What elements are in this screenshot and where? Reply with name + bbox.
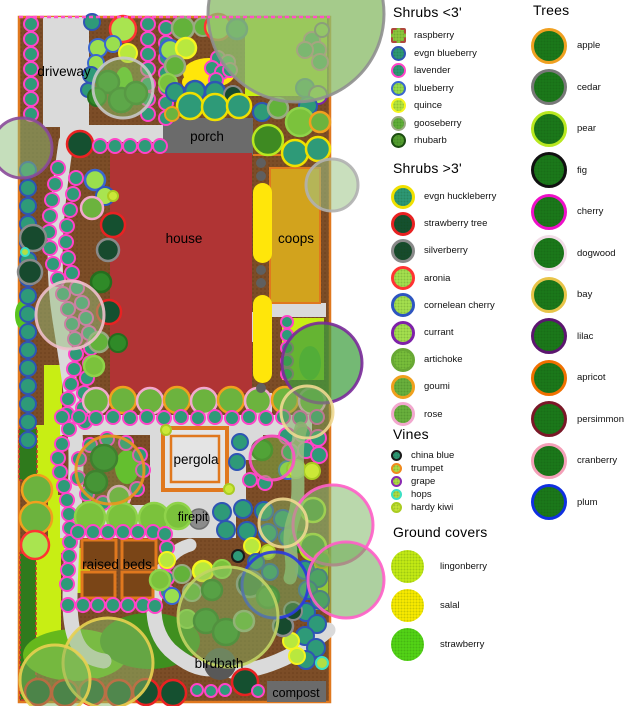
legend-swatch-evgn-huckleberry [391,185,415,209]
plant-lav [53,465,67,479]
plant-hki [304,463,320,479]
plant-lav [123,411,137,425]
legend-item-label: apple [577,40,600,51]
plant-ehk [177,93,203,119]
legend-swatch-cornelean-cherry [391,293,415,317]
legend-item: lingonberry [391,547,529,586]
legend-item-label: strawberry [440,639,484,650]
plant-lav [48,177,62,191]
plant-qui [176,38,196,58]
plant-lav [55,437,69,451]
legend-swatch-gooseberry [391,116,406,131]
legend-swatch-currant [391,321,415,345]
plant-lav [57,479,71,493]
legend-swatch-lingonberry [391,550,424,583]
legend-swatch-persimmon [531,401,567,437]
legend-item-label: rhubarb [414,135,447,146]
plant-lav [259,411,273,425]
legend-swatch-aronia [391,266,415,290]
plant-hki [108,191,118,201]
plant-lav [153,139,167,153]
plant-art [84,356,104,376]
plant-qui [289,648,305,664]
legend-item-label: silverberry [424,245,468,256]
plant-evb [20,306,36,322]
legend-swatch-artichoke [391,348,415,372]
legend-swatch-lavender [391,63,406,78]
legend-swatch-evgn-blueberry [391,46,406,61]
legend-item-label: cherry [577,206,603,217]
plant-lav [243,473,257,487]
plant-evb [20,414,36,430]
legend-swatch-cedar [531,69,567,105]
legend-item: plum [531,482,637,524]
legend-item-label: china blue [411,450,454,461]
legend-swatch-fig [531,152,567,188]
plant-lav [311,447,327,463]
plant-lav [148,599,162,613]
plant-evb [20,378,36,394]
legend-item-label: hardy kiwi [411,502,453,513]
legend-item: lilac [531,316,637,358]
plant-lav [174,410,188,424]
legend-item: persimmon [531,399,637,441]
plant-lav [60,493,74,507]
plant-lav [69,171,83,185]
plant-dot [256,171,266,181]
legend-item-label: goumi [424,381,450,392]
legend-section-title: Shrubs <3' [393,4,529,20]
plant-evb [20,396,36,412]
legend-item: pear [531,108,637,150]
plant-lav [61,392,75,406]
plant-evb [217,521,235,539]
legend-swatch-cranberry [531,443,567,479]
legend-item-label: lingonberry [440,561,487,572]
house-label: house [166,231,203,246]
legend-swatch-salal [391,589,424,622]
legend-item-label: apricot [577,372,606,383]
yellow-strip-2 [253,295,272,383]
house [110,153,252,393]
plant-evb [20,198,36,214]
tree-canopy [259,499,307,547]
plant-lav [24,62,38,76]
pergola-label: pergola [173,452,219,467]
tree-canopy [308,542,384,618]
legend-item-label: trumpet [411,463,443,474]
legend-swatch-apple [531,28,567,64]
legend-swatch-blueberry [391,81,406,96]
legend-item: blueberry [391,80,529,98]
legend-section: Treesapplecedarpearfigcherrydogwoodbayli… [531,2,637,523]
plant-lav [61,598,75,612]
legend-swatch-grape [391,476,402,487]
plant-lav [55,410,69,424]
legend-item-label: fig [577,165,587,176]
legend-item: lavender [391,62,529,80]
legend-swatch-strawberry [391,628,424,661]
plant-lav [219,684,231,696]
plant-lav [208,410,222,424]
legend-section: Shrubs >3'evgn huckleberrystrawberry tre… [391,160,529,428]
plant-dot [256,383,266,393]
legend-item: artichoke [391,346,529,373]
legend-item-label: lavender [414,65,450,76]
legend-item-label: blueberry [414,83,454,94]
plant-lav [51,451,65,465]
legend-swatch-silverberry [391,239,415,263]
plant-evb [20,180,36,196]
plant-lav [60,219,74,233]
plant-svb [18,260,42,284]
plant-stt [160,680,186,706]
legend-col-1: Shrubs <3'raspberryevgn blueberrylavende… [391,0,529,706]
plant-lav [123,139,137,153]
plant-lav [61,251,75,265]
legend-swatch-plum [531,484,567,520]
legend-item: dogwood [531,233,637,275]
legend-swatch-strawberry-tree [391,212,415,236]
legend-item: evgn blueberry [391,45,529,63]
plant-lav [24,77,38,91]
tree-canopy [76,436,144,504]
plant-lav [60,577,74,591]
plant-ehk [282,140,308,166]
plant-qui [159,552,175,568]
plant-lav [72,410,86,424]
plant-lav [63,203,77,217]
plant-lav [121,598,135,612]
plant-lav [24,17,38,31]
legend-section-title: Trees [533,2,637,18]
plant-svb [20,225,46,251]
legend-item: silverberry [391,237,529,264]
tree-canopy [281,386,333,438]
plant-evb [232,434,248,450]
legend-item: aronia [391,265,529,292]
legend-item: apricot [531,357,637,399]
legend-item: trumpet [391,462,529,475]
legend-swatch-china-blue [391,450,402,461]
legend-item-label: plum [577,497,598,508]
tree-canopy [250,436,294,480]
plant-evb [20,342,36,358]
legend-item-label: evgn huckleberry [424,191,496,202]
plant-lav [116,525,130,539]
legend-item-label: strawberry tree [424,218,487,229]
plant-dot [256,278,266,288]
plant-hop [21,248,29,256]
legend-item-label: pear [577,123,596,134]
plant-lav [242,410,256,424]
legend-item-label: artichoke [424,354,463,365]
garden-plan-page: driveway porch house coops pergola firep… [0,0,637,706]
plant-lav [158,527,172,541]
plant-evb [20,324,36,340]
legend-swatch-hops [391,489,402,500]
plant-ehk [202,94,228,120]
legend-item-label: dogwood [577,248,616,259]
plant-gou [310,112,330,132]
tree-canopy [36,281,104,349]
plant-evb [229,454,245,470]
plant-lav [131,525,145,539]
plant-lav [67,362,81,376]
legend-section: Ground coverslingonberrysalalstrawberry [391,524,529,664]
plant-svb [97,239,119,261]
legend-item: grape [391,475,529,488]
legend-section-title: Vines [393,426,529,442]
plant-blu [164,588,180,604]
legend-swatch-cherry [531,194,567,230]
legend-item: currant [391,319,529,346]
plant-lav [89,411,103,425]
plant-lav [108,139,122,153]
plant-lav [61,563,75,577]
plant-gou [164,387,190,413]
plant-lav [191,411,205,425]
plant-lav [59,235,73,249]
compost-label: compost [272,686,320,700]
plant-lav [24,32,38,46]
plant-gou [20,502,52,534]
legend-item: rhubarb [391,132,529,150]
plant-lav [141,47,155,61]
plant-dot [256,265,266,275]
legend-item: rose [391,401,529,428]
tree-canopy [0,118,52,178]
plant-evb [20,360,36,376]
legend-item: strawberry tree [391,210,529,237]
legend-item-label: currant [424,327,454,338]
legend-item: evgn huckleberry [391,183,529,210]
legend-item: cornelean cherry [391,292,529,319]
tree-canopy [178,567,278,667]
legend-item-label: quince [414,100,442,111]
legend-item: raspberry [391,27,529,45]
legend-section: Shrubs <3'raspberryevgn blueberrylavende… [391,4,529,150]
legend-section-title: Shrubs >3' [393,160,529,176]
legend-item-label: gooseberry [414,118,462,129]
legend-section-title: Ground covers [393,524,529,540]
plant-art [150,570,170,590]
legend-item: china blue [391,449,529,462]
legend-swatch-quince [391,98,406,113]
plant-evb [20,432,36,448]
plant-lav [71,525,85,539]
legend-item-label: cranberry [577,455,617,466]
plant-dot [256,158,266,168]
porch-label: porch [190,129,224,144]
legend-item: hardy kiwi [391,501,529,514]
plant-lav [157,411,171,425]
legend-swatch-rhubarb [391,133,406,148]
plant-stt [67,131,93,157]
legend-swatch-lilac [531,318,567,354]
plant-lav [191,684,203,696]
legend-item: bay [531,274,637,316]
plant-ehk [306,137,330,161]
legend-swatch-goumi [391,375,415,399]
legend-item-label: cornelean cherry [424,300,495,311]
yellow-strip-1 [253,183,272,263]
legend-item: fig [531,150,637,192]
plant-lav [76,598,90,612]
plant-goo [172,17,194,39]
legend-item-label: persimmon [577,414,624,425]
birdbath-label: birdbath [195,656,244,671]
plant-hki [224,484,234,494]
legend-swatch-rose [391,402,415,426]
plant-lav [24,47,38,61]
plant-lav [62,549,76,563]
plant-lav [65,266,79,280]
plant-dg [109,334,127,352]
legend-item-label: grape [411,476,435,487]
legend-item-label: salal [440,600,460,611]
plant-lav [43,209,57,223]
legend-swatch-dogwood [531,235,567,271]
legend-item: goumi [391,373,529,400]
plant-aro [21,531,49,559]
legend-item-label: rose [424,409,442,420]
legend-item-label: hops [411,489,432,500]
plant-lav [24,92,38,106]
tree-canopy [306,159,358,211]
plant-stt [101,213,125,237]
legend-item: gooseberry [391,115,529,133]
plant-lav [138,139,152,153]
legend-item-label: raspberry [414,30,454,41]
plant-hop [316,657,328,669]
plant-lav [66,187,80,201]
plant-gou [22,475,52,505]
plant-evb [213,503,231,521]
plant-qui [244,538,260,554]
legend-item: hops [391,488,529,501]
legend-item-label: evgn blueberry [414,48,477,59]
firepit-label: firepit [178,510,209,524]
legend-swatch-raspberry [391,28,406,43]
legend-swatch-hardy-kiwi [391,502,402,513]
plant-lav [141,32,155,46]
legend-swatch-apricot [531,360,567,396]
legend-swatch-bay [531,277,567,313]
legend-section: Vineschina bluetrumpetgrapehopshardy kiw… [391,426,529,514]
plant-lav [140,410,154,424]
legend-item: cherry [531,191,637,233]
plant-lav [45,193,59,207]
legend-item-label: lilac [577,331,593,342]
plant-lav [93,139,107,153]
legend-item: cranberry [531,440,637,482]
driveway-label: driveway [37,64,91,79]
legend-item-label: bay [577,289,592,300]
plant-lav [141,17,155,31]
garden-plan-map: driveway porch house coops pergola firep… [0,0,390,706]
legend-swatch-trumpet [391,463,402,474]
plant-gou [165,107,179,121]
plant-lav [281,316,293,328]
raised-beds-label: raised beds [82,557,152,572]
plant-lav [252,685,264,697]
plant-evb [20,288,36,304]
legend-item-label: cedar [577,82,601,93]
tree-canopy [20,645,90,706]
plant-lav [86,525,100,539]
plant-lav [46,257,60,271]
plant-per [253,125,283,155]
plant-lav [205,685,217,697]
plant-lav [225,411,239,425]
plant-lav [106,410,120,424]
plant-ehk [227,94,251,118]
plant-lav [51,161,65,175]
plant-hki [161,425,171,435]
plant-chb [232,550,244,562]
legend-item-label: aronia [424,273,450,284]
plant-lav [106,598,120,612]
plant-goo [173,565,191,583]
legend-item: salal [391,586,529,625]
legend-item: apple [531,25,637,67]
plant-lav [64,377,78,391]
legend-swatch-pear [531,111,567,147]
plant-lav [101,525,115,539]
plant-gou [218,387,244,413]
plant-ros [81,197,103,219]
tree-canopy [93,58,153,118]
legend-col-2: Treesapplecedarpearfigcherrydogwoodbayli… [531,0,637,706]
legend-item: quince [391,97,529,115]
plant-lav [91,598,105,612]
legend-item: strawberry [391,625,529,664]
legend-item: cedar [531,67,637,109]
plant-evb [234,500,252,518]
coops-label: coops [278,231,314,246]
